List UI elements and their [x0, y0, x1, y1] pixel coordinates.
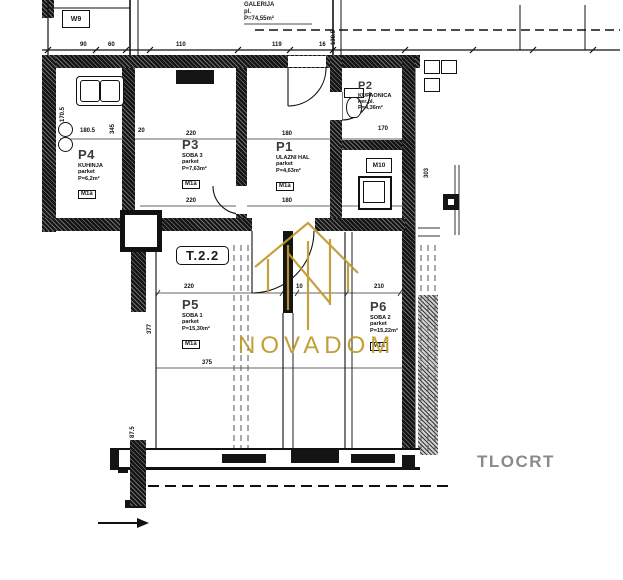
fixture-box [424, 78, 440, 92]
room-tag: M1a [182, 340, 200, 349]
wall-p1-p2 [330, 55, 342, 222]
room-area: P=6,2m² [78, 176, 103, 182]
room-id: P5 [182, 298, 210, 313]
sink-basin [80, 80, 100, 102]
m10-label: M10 [373, 162, 386, 169]
sink-basin [100, 80, 120, 102]
window-sill [291, 450, 339, 463]
room-tag: M1a [182, 180, 200, 189]
wall-cap [110, 448, 119, 470]
galerija-area: P=74,55m² [244, 16, 274, 23]
w9-label: W9 [71, 16, 82, 23]
window-sill [222, 454, 266, 463]
room-label-p1: P1 ULAZNI HAL parket P=4,63m² M1a [276, 140, 310, 193]
novadom-house-logo [240, 215, 400, 345]
galerija-floor: pl. [244, 9, 274, 16]
wall-right [402, 55, 415, 470]
column-with-cross [120, 210, 162, 252]
room-tag: M1a [276, 182, 294, 191]
wall-cap [402, 455, 415, 470]
room-id: P3 [182, 138, 207, 153]
room-area: P=15,30m² [182, 326, 210, 332]
room-label-p2: P2 KUPAONICA ker.pl. P=4,36m² [358, 80, 391, 112]
galerija-label: GALERIJA pl. P=74,55m² [244, 2, 274, 23]
door-opening [288, 56, 326, 67]
room-tag: M1a [78, 190, 96, 199]
room-id: P4 [78, 148, 103, 163]
room-label-p4: P4 KUHINJA parket P=6,2m² M1a [78, 148, 103, 201]
door-tag-m10: M10 [366, 158, 392, 173]
window-sill [351, 454, 395, 463]
novadom-wordmark: NOVADOM [238, 332, 395, 360]
room-id: P2 [358, 80, 391, 93]
shower-tray-inner [363, 181, 385, 203]
stove-burner-symbol [58, 122, 73, 137]
room-label-p5: P5 SOBA 1 parket P=15,30m² M1a [182, 298, 210, 351]
wall-left [42, 55, 56, 232]
fixture-box [441, 60, 457, 74]
column-core [448, 199, 454, 205]
room-area: P=4,36m² [358, 105, 391, 111]
wardrobe-symbol [176, 70, 214, 84]
floor-plan-canvas: W9 M10 T.2.2 GALERIJA pl. P=74,55m² P4 K… [0, 0, 623, 580]
fixture-box [424, 60, 440, 74]
door-opening [236, 186, 247, 214]
wall-bath-mid [342, 140, 405, 150]
direction-arrow-icon [98, 518, 149, 528]
door-opening [330, 92, 342, 120]
galerija-name: GALERIJA [244, 2, 274, 9]
wall-stair-stub [130, 440, 146, 506]
unit-code: T.2.2 [186, 248, 219, 263]
wall-stub [131, 252, 146, 312]
room-area: P=7,63m² [182, 166, 207, 172]
room-area: P=4,63m² [276, 168, 310, 174]
room-label-p3: P3 SOBA 3 parket P=7,63m² M1a [182, 138, 207, 191]
window-tag-w9: W9 [62, 10, 90, 28]
unit-code-badge: T.2.2 [176, 246, 229, 265]
stove-burner-symbol [58, 137, 73, 152]
room-id: P1 [276, 140, 310, 155]
wall-top [42, 55, 420, 68]
